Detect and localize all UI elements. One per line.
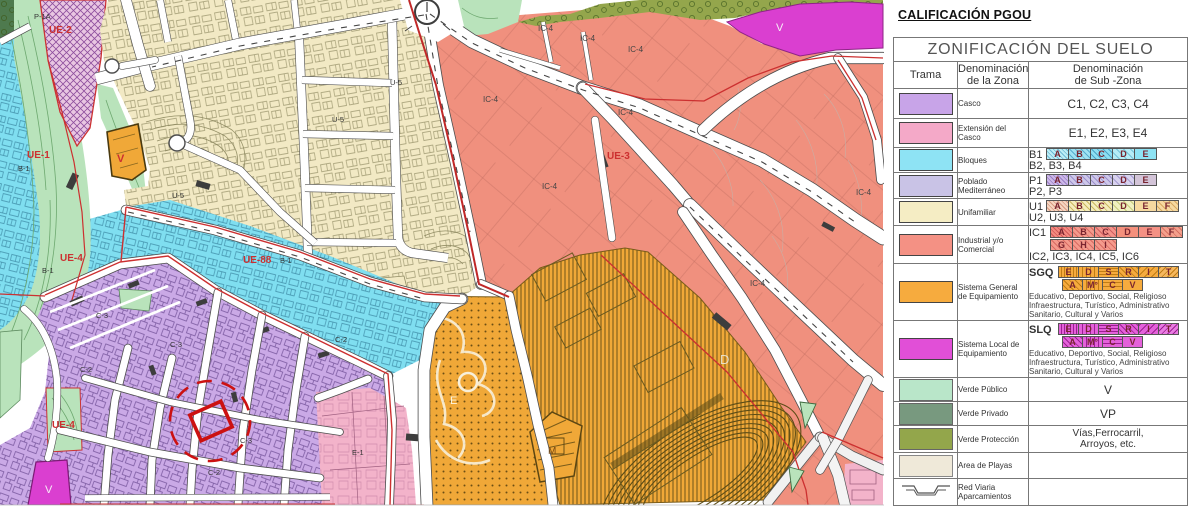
- svg-text:IC-4: IC-4: [483, 95, 499, 104]
- svg-text:U-5: U-5: [390, 78, 402, 87]
- svg-text:IC-4: IC-4: [542, 182, 558, 191]
- svg-text:M: M: [548, 446, 556, 457]
- svg-text:C-2: C-2: [80, 365, 92, 374]
- svg-text:E: E: [450, 395, 457, 407]
- svg-text:E-1: E-1: [352, 448, 364, 457]
- svg-text:C-2: C-2: [208, 468, 220, 477]
- svg-text:IC-4: IC-4: [580, 34, 596, 43]
- svg-text:UE-4: UE-4: [52, 420, 75, 431]
- svg-text:B-1: B-1: [18, 164, 30, 173]
- svg-text:B-1: B-1: [280, 256, 292, 265]
- svg-text:C-3: C-3: [170, 340, 182, 349]
- svg-text:C-3: C-3: [96, 311, 108, 320]
- svg-text:UE-4: UE-4: [60, 253, 83, 264]
- svg-text:D: D: [720, 352, 729, 367]
- svg-text:V: V: [45, 484, 53, 496]
- svg-text:V: V: [117, 153, 125, 165]
- svg-text:IC-4: IC-4: [618, 108, 634, 117]
- svg-text:UE-3: UE-3: [607, 151, 630, 162]
- svg-text:IC-4: IC-4: [750, 279, 766, 288]
- svg-text:B-1: B-1: [42, 266, 54, 275]
- svg-text:IC-4: IC-4: [538, 24, 554, 33]
- svg-text:C-3: C-3: [240, 436, 252, 445]
- svg-text:UE-1: UE-1: [27, 150, 50, 161]
- svg-text:IC-4: IC-4: [856, 188, 872, 197]
- svg-text:C-2: C-2: [335, 335, 347, 344]
- svg-text:UE-2: UE-2: [49, 25, 72, 36]
- svg-text:U-5: U-5: [332, 115, 344, 124]
- svg-text:P-1A: P-1A: [34, 12, 51, 21]
- svg-text:UE-88: UE-88: [243, 255, 272, 266]
- svg-text:IC-4: IC-4: [628, 45, 644, 54]
- svg-text:U-5: U-5: [172, 191, 184, 200]
- svg-text:V: V: [776, 22, 784, 34]
